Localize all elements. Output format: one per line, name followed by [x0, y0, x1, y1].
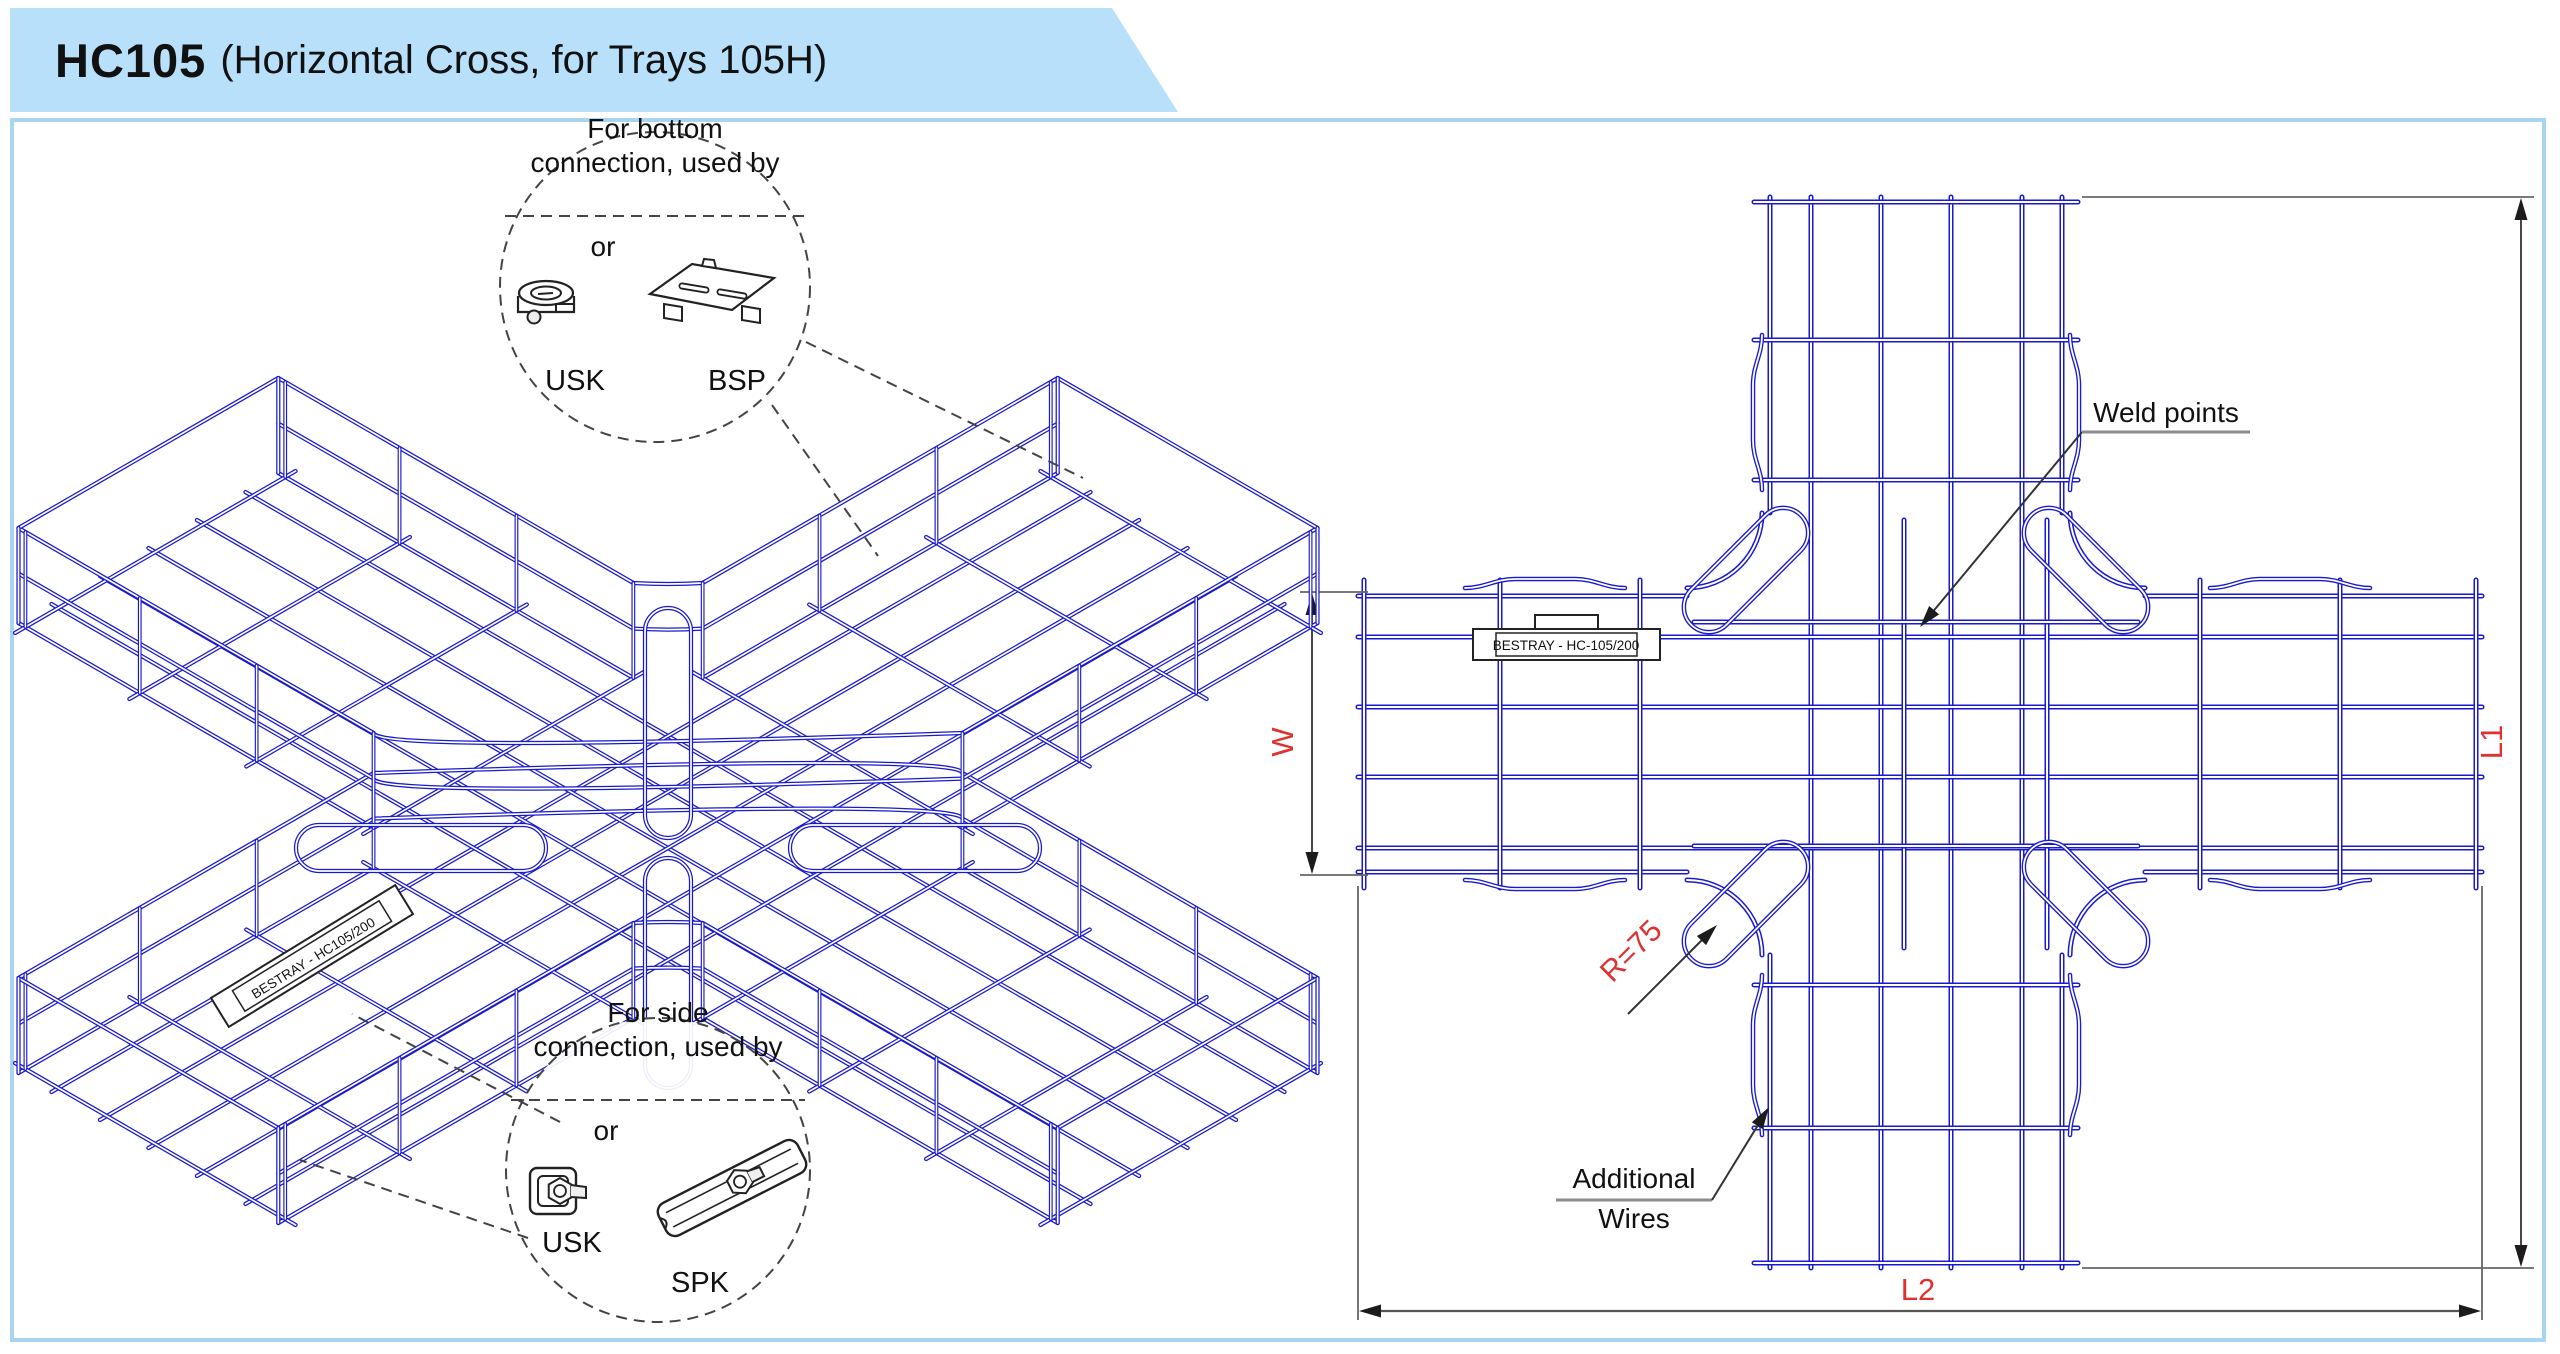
radius-label: R=75	[1594, 914, 1669, 989]
plan-tag-text: BESTRAY - HC-105/200	[1493, 638, 1640, 653]
usk-side-label: USK	[542, 1227, 602, 1259]
callout-bottom-connection: For bottomconnection, used byorUSKBSP	[500, 113, 1083, 556]
callout-side-connection: For sideconnection, used byorUSKSPK	[300, 997, 810, 1322]
callout-line2: connection, used by	[533, 1031, 782, 1062]
drawing-canvas: BESTRAY - HC-105/200WL1L2R=75Weld points…	[0, 0, 2560, 1354]
weld-points-label: Weld points	[2093, 397, 2239, 428]
plan-dimensions: WL1L2R=75	[1265, 197, 2534, 1320]
callout-line1: For bottom	[587, 113, 722, 144]
dim-l2-label: L2	[1901, 1272, 1935, 1307]
additional-wires-label-2: Wires	[1598, 1203, 1670, 1234]
usk-label: USK	[545, 365, 605, 397]
dim-l1-label: L1	[2474, 725, 2509, 759]
callout-line2: connection, used by	[530, 147, 779, 178]
plan-view	[1358, 197, 2482, 1268]
dim-w-label: W	[1265, 727, 1300, 757]
corner-gusset-wire	[1674, 832, 1819, 977]
spk-label: SPK	[671, 1267, 730, 1299]
callout-or-label: or	[591, 231, 616, 262]
bsp-label: BSP	[708, 365, 766, 397]
callout-or-label: or	[594, 1115, 619, 1146]
additional-wires-annotation: AdditionalWires	[1556, 1107, 1769, 1234]
callout-line1: For side	[607, 997, 708, 1028]
corner-gusset-wire	[2014, 832, 2159, 977]
additional-wires-label-1: Additional	[1573, 1163, 1696, 1194]
